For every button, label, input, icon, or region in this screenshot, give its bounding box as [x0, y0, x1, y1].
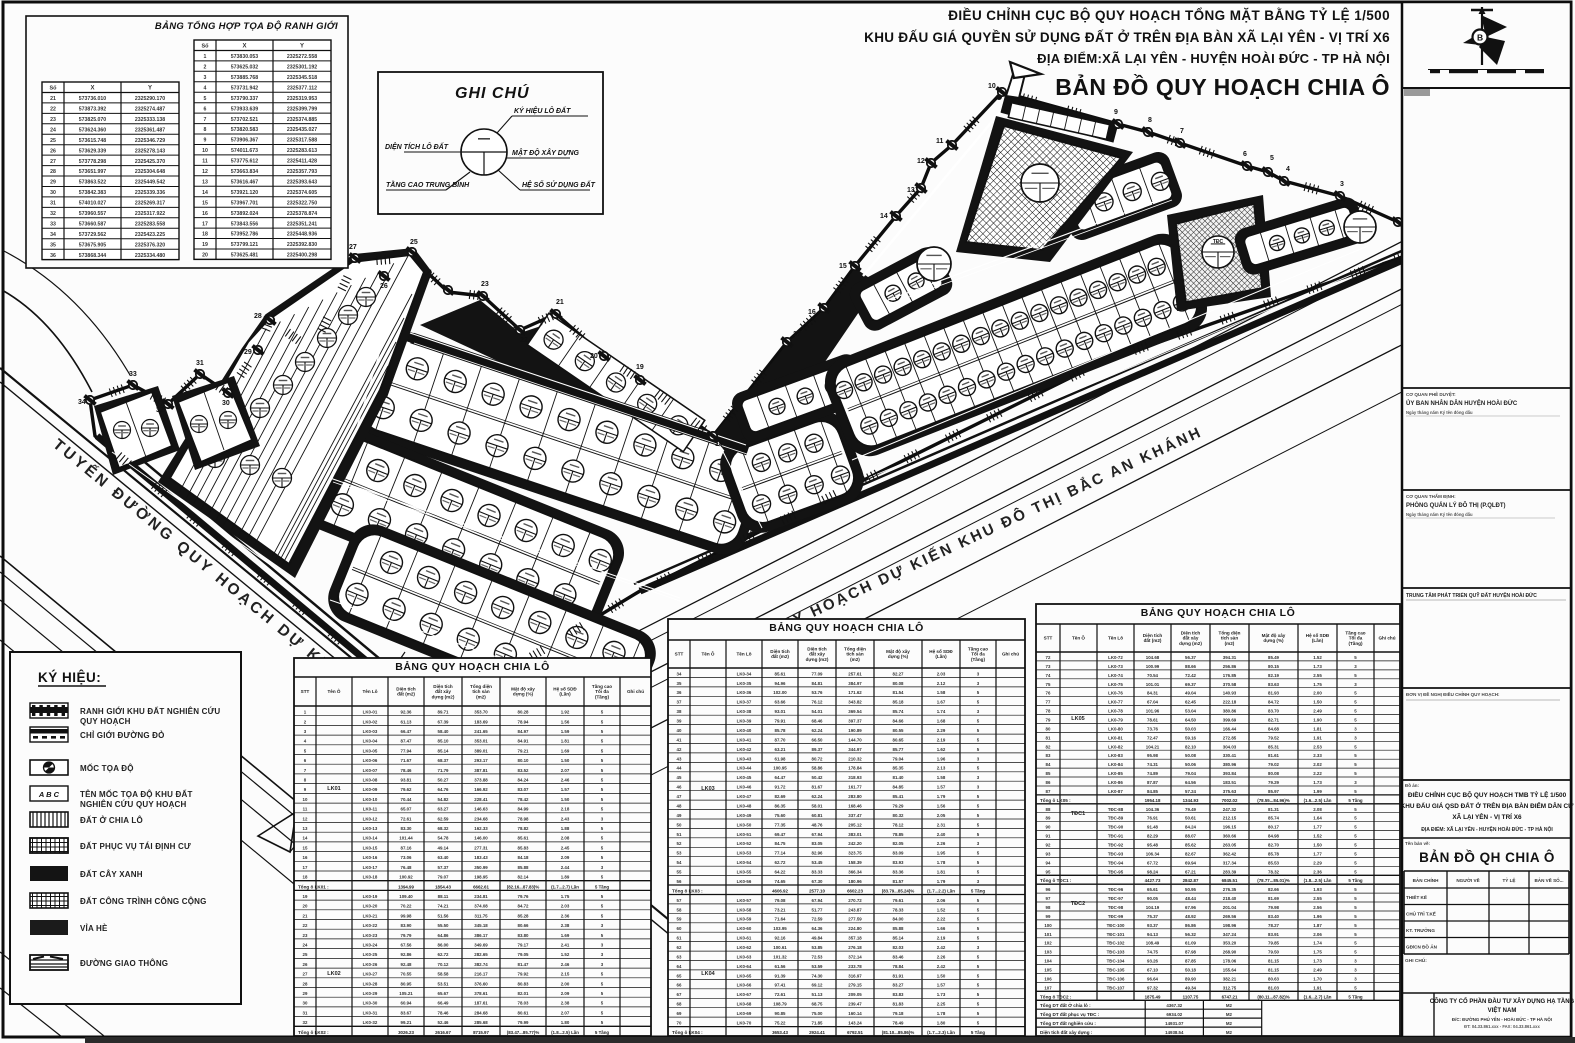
svg-text:311.75: 311.75: [474, 913, 488, 918]
svg-text:39: 39: [677, 719, 682, 724]
svg-text:50.61: 50.61: [1185, 816, 1197, 821]
svg-text:84: 84: [1046, 762, 1051, 767]
svg-text:78.27: 78.27: [1268, 923, 1280, 928]
svg-text:9: 9: [204, 138, 207, 144]
svg-text:LK0-66: LK0-66: [737, 983, 752, 988]
svg-text:(m2): (m2): [476, 694, 486, 699]
svg-text:94: 94: [1046, 860, 1051, 865]
svg-text:Tổng DT đất Ở chia lô :: Tổng DT đất Ở chia lô :: [1040, 1002, 1091, 1008]
svg-text:2.19: 2.19: [937, 737, 946, 742]
svg-text:Tổng diện: Tổng diện: [470, 683, 492, 689]
svg-text:14938.54: 14938.54: [1165, 1030, 1184, 1035]
svg-text:2.09: 2.09: [561, 855, 570, 860]
svg-text:1.81: 1.81: [937, 870, 946, 875]
svg-text:83.93: 83.93: [893, 860, 905, 865]
svg-text:28: 28: [254, 313, 262, 320]
svg-text:73.21: 73.21: [775, 907, 787, 912]
svg-text:389.01: 389.01: [474, 748, 488, 753]
svg-text:2.56: 2.56: [1313, 905, 1322, 910]
svg-text:103.95: 103.95: [773, 926, 787, 931]
svg-text:ỦY BAN NHÂN DÂN HUYỆN HOÀI ĐỨC: ỦY BAN NHÂN DÂN HUYỆN HOÀI ĐỨC: [1406, 399, 1518, 407]
svg-text:78.94: 78.94: [518, 719, 530, 724]
svg-text:5 Tầng: 5 Tầng: [971, 888, 985, 893]
svg-text:78: 78: [1046, 709, 1051, 714]
svg-text:TĐC-107: TĐC-107: [1107, 985, 1125, 990]
svg-text:318.93: 318.93: [848, 775, 862, 780]
svg-text:77.14: 77.14: [775, 851, 787, 856]
svg-text:155.64: 155.64: [1223, 968, 1237, 973]
svg-text:71.79: 71.79: [438, 768, 450, 773]
svg-text:83.36: 83.36: [893, 870, 905, 875]
svg-text:LK0-05: LK0-05: [363, 748, 378, 753]
svg-text:LK0-75: LK0-75: [1108, 682, 1123, 687]
svg-text:RANH GIỚI KHU ĐẤT NGHIÊN CỨU: RANH GIỚI KHU ĐẤT NGHIÊN CỨU: [80, 706, 220, 716]
svg-text:80.61: 80.61: [518, 1011, 530, 1016]
svg-text:2.08: 2.08: [1313, 807, 1322, 812]
svg-text:83.90: 83.90: [401, 923, 413, 928]
svg-text:ĐẤT PHỤC VỤ TÁI ĐỊNH CƯ: ĐẤT PHỤC VỤ TÁI ĐỊNH CƯ: [80, 841, 191, 851]
svg-text:54: 54: [677, 860, 682, 865]
svg-text:64.22: 64.22: [775, 870, 787, 875]
svg-text:35: 35: [677, 681, 682, 686]
svg-text:573625.481: 573625.481: [231, 253, 259, 259]
svg-text:28: 28: [303, 981, 308, 986]
svg-text:87.70: 87.70: [775, 737, 787, 742]
svg-text:2325301.192: 2325301.192: [287, 65, 317, 71]
svg-text:239.47: 239.47: [848, 1002, 862, 1007]
svg-text:BẢNG QUY HOẠCH CHIA LÔ: BẢNG QUY HOẠCH CHIA LÔ: [769, 621, 924, 634]
svg-text:MỐC TỌA ĐỘ: MỐC TỌA ĐỘ: [80, 763, 134, 773]
svg-text:382.74: 382.74: [474, 962, 488, 967]
svg-text:LK0-45: LK0-45: [737, 775, 752, 780]
svg-text:2325317.588: 2325317.588: [287, 138, 317, 144]
svg-text:2.42: 2.42: [937, 964, 946, 969]
svg-text:36: 36: [50, 253, 56, 259]
svg-text:2325448.936: 2325448.936: [287, 232, 317, 238]
svg-text:84.68: 84.68: [1268, 726, 1280, 731]
svg-text:75: 75: [1046, 682, 1051, 687]
svg-text:61: 61: [677, 936, 682, 941]
svg-text:2325345.518: 2325345.518: [287, 75, 317, 81]
svg-text:46: 46: [677, 785, 682, 790]
svg-text:7: 7: [1180, 128, 1184, 135]
svg-text:(1.8...2.5) Lần: (1.8...2.5) Lần: [551, 1030, 579, 1035]
svg-text:1.91: 1.91: [1313, 735, 1322, 740]
svg-text:92.86: 92.86: [401, 952, 413, 957]
svg-text:53.45: 53.45: [812, 860, 824, 865]
svg-text:101.32: 101.32: [773, 954, 787, 959]
svg-text:88.66: 88.66: [1185, 664, 1197, 669]
svg-text:XÃ LẠI YÊN - VỊ TRÍ X6: XÃ LẠI YÊN - VỊ TRÍ X6: [1452, 812, 1522, 821]
svg-text:72: 72: [1046, 655, 1051, 660]
svg-text:62.45: 62.45: [1185, 700, 1197, 705]
svg-text:74.75: 74.75: [1147, 950, 1159, 955]
svg-text:49: 49: [677, 813, 682, 818]
svg-text:54.01: 54.01: [812, 709, 824, 714]
svg-text:33: 33: [129, 371, 137, 378]
svg-text:81.57: 81.57: [893, 879, 905, 884]
svg-text:76.48: 76.48: [401, 865, 413, 870]
svg-text:TĐC-105: TĐC-105: [1107, 968, 1125, 973]
svg-text:dựng (m2): dựng (m2): [1179, 641, 1202, 646]
svg-text:2.07: 2.07: [561, 768, 570, 773]
svg-text:TÊN MỐC TỌA ĐỘ KHU ĐẤT: TÊN MỐC TỌA ĐỘ KHU ĐẤT: [80, 789, 193, 799]
svg-text:20: 20: [202, 253, 208, 259]
svg-text:27: 27: [303, 972, 308, 977]
svg-text:26: 26: [303, 962, 308, 967]
svg-text:378.61: 378.61: [474, 991, 488, 996]
svg-text:573873.392: 573873.392: [79, 107, 107, 113]
svg-text:2.43: 2.43: [561, 816, 570, 821]
svg-text:B: B: [1477, 33, 1483, 43]
svg-text:380.86: 380.86: [1223, 709, 1237, 714]
svg-text:CÔNG TY CỔ PHẦN ĐẦU TƯ XÂY DỰN: CÔNG TY CỔ PHẦN ĐẦU TƯ XÂY DỰNG HẠ TẦNG: [1430, 997, 1575, 1005]
svg-text:144.70: 144.70: [848, 737, 862, 742]
svg-text:ĐẤT CÂY XANH: ĐẤT CÂY XANH: [80, 869, 143, 879]
svg-text:51.13: 51.13: [812, 992, 824, 997]
svg-text:17: 17: [202, 221, 208, 227]
svg-text:X: X: [90, 86, 94, 92]
svg-text:1.81: 1.81: [561, 739, 570, 744]
svg-text:2325351.241: 2325351.241: [287, 221, 317, 227]
svg-text:108.79: 108.79: [773, 1002, 787, 1007]
svg-text:76.91: 76.91: [1147, 816, 1159, 821]
svg-text:1.52: 1.52: [1313, 834, 1322, 839]
svg-text:171.62: 171.62: [848, 690, 862, 695]
svg-text:2.29: 2.29: [1313, 860, 1322, 865]
svg-text:1.79: 1.79: [937, 794, 946, 799]
svg-text:2.26: 2.26: [937, 841, 946, 846]
svg-text:2.46: 2.46: [561, 962, 570, 967]
svg-text:2325304.648: 2325304.648: [135, 169, 165, 175]
svg-text:78.12: 78.12: [893, 822, 905, 827]
svg-text:LK0-47: LK0-47: [737, 794, 752, 799]
svg-text:102.00: 102.00: [773, 690, 787, 695]
svg-text:72.42: 72.42: [1185, 673, 1197, 678]
svg-text:52.46: 52.46: [438, 1020, 450, 1025]
svg-text:61.98: 61.98: [775, 756, 787, 761]
svg-text:LK0-77: LK0-77: [1108, 700, 1123, 705]
svg-text:50.06: 50.06: [1185, 762, 1197, 767]
svg-text:69.47: 69.47: [775, 832, 787, 837]
svg-text:LK0-12: LK0-12: [363, 816, 378, 821]
svg-text:107: 107: [1044, 985, 1052, 990]
svg-text:LK0-18: LK0-18: [363, 875, 378, 880]
svg-text:74.31: 74.31: [1147, 762, 1159, 767]
svg-text:394.31: 394.31: [1223, 655, 1237, 660]
svg-text:74.21: 74.21: [438, 904, 450, 909]
svg-text:2.38: 2.38: [561, 923, 570, 928]
svg-text:LK0-20: LK0-20: [363, 904, 378, 909]
svg-text:1.95: 1.95: [937, 851, 946, 856]
svg-text:2325272.558: 2325272.558: [287, 54, 317, 60]
svg-text:1.58: 1.58: [937, 775, 946, 780]
svg-text:33: 33: [50, 222, 56, 228]
svg-text:65.61: 65.61: [1147, 887, 1159, 892]
svg-text:14931.07: 14931.07: [1165, 1021, 1184, 1026]
svg-text:LK0-39: LK0-39: [737, 719, 752, 724]
svg-text:LK0-06: LK0-06: [363, 758, 378, 763]
svg-text:58.40: 58.40: [438, 729, 450, 734]
svg-text:1.80: 1.80: [561, 1020, 570, 1025]
svg-text:21: 21: [556, 299, 564, 306]
svg-text:360.66: 360.66: [1223, 834, 1237, 839]
svg-text:1.50: 1.50: [1313, 843, 1322, 848]
svg-text:KHU ĐẤU GIÁ QUYỀN SỬ DỤNG ĐẤT: KHU ĐẤU GIÁ QUYỀN SỬ DỤNG ĐẤT Ở TRÊN ĐỊA…: [864, 30, 1390, 45]
svg-text:2.44: 2.44: [561, 865, 570, 870]
svg-text:Tổng diện: Tổng diện: [1219, 629, 1241, 635]
svg-text:16: 16: [303, 855, 308, 860]
svg-text:77: 77: [1046, 700, 1051, 705]
svg-text:2.49: 2.49: [1313, 968, 1322, 973]
svg-text:82.70: 82.70: [1268, 843, 1280, 848]
svg-text:68.75: 68.75: [812, 1002, 824, 1007]
svg-text:2.55: 2.55: [1313, 896, 1322, 901]
svg-text:96: 96: [1046, 887, 1051, 892]
svg-text:LK0-70: LK0-70: [737, 1021, 752, 1026]
svg-text:101.96: 101.96: [1146, 709, 1160, 714]
svg-text:23: 23: [50, 117, 56, 123]
svg-text:TĐC-98: TĐC-98: [1108, 905, 1124, 910]
svg-text:2325346.729: 2325346.729: [135, 138, 165, 144]
svg-text:53: 53: [677, 851, 682, 856]
svg-text:83.05: 83.05: [812, 841, 824, 846]
svg-text:31: 31: [50, 201, 56, 207]
svg-text:83.80: 83.80: [518, 933, 530, 938]
svg-text:387.81: 387.81: [474, 768, 488, 773]
svg-text:5 Tầng: 5 Tầng: [595, 884, 609, 889]
svg-text:87.87: 87.87: [1147, 780, 1159, 785]
svg-text:BẢNG QUY HOẠCH CHIA LÔ: BẢNG QUY HOẠCH CHIA LÔ: [1141, 606, 1296, 619]
svg-text:573892.024: 573892.024: [231, 211, 259, 217]
svg-text:34: 34: [50, 232, 56, 238]
svg-text:85.77: 85.77: [893, 747, 905, 752]
svg-text:88: 88: [1046, 807, 1051, 812]
svg-text:(Lần): (Lần): [1312, 638, 1324, 643]
svg-text:29: 29: [50, 180, 56, 186]
svg-text:79.07: 79.07: [438, 875, 450, 880]
svg-text:LK0-62: LK0-62: [737, 945, 752, 950]
svg-text:317.34: 317.34: [1223, 860, 1237, 865]
svg-text:84.75: 84.75: [775, 841, 787, 846]
svg-text:64.56: 64.56: [1185, 780, 1197, 785]
svg-text:85.14: 85.14: [438, 748, 450, 753]
svg-text:62.59: 62.59: [438, 816, 450, 821]
svg-text:212.15: 212.15: [1223, 816, 1237, 821]
svg-text:573842.383: 573842.383: [79, 190, 107, 196]
svg-text:BẢN VẼ SỐ...: BẢN VẼ SỐ...: [1534, 877, 1563, 883]
svg-text:256.86: 256.86: [1223, 664, 1237, 669]
svg-text:397.37: 397.37: [848, 719, 862, 724]
svg-text:dựng (%): dựng (%): [513, 692, 534, 697]
svg-text:TĐC-100: TĐC-100: [1107, 923, 1125, 928]
svg-text:82.96: 82.96: [812, 851, 824, 856]
svg-text:2.13: 2.13: [937, 766, 946, 771]
svg-text:84.81: 84.81: [812, 681, 824, 686]
svg-text:2325357.793: 2325357.793: [287, 169, 317, 175]
svg-text:312.75: 312.75: [1223, 985, 1237, 990]
svg-text:75.37: 75.37: [1147, 914, 1159, 919]
svg-text:45: 45: [677, 775, 682, 780]
svg-text:LK0-48: LK0-48: [737, 804, 752, 809]
svg-text:Tổng ô LK05 :: Tổng ô LK05 :: [1040, 797, 1071, 803]
svg-text:201.04: 201.04: [1223, 905, 1237, 910]
svg-text:1.56: 1.56: [937, 804, 946, 809]
svg-text:79.04: 79.04: [893, 756, 905, 761]
svg-text:1.66: 1.66: [937, 926, 946, 931]
svg-text:573625.032: 573625.032: [231, 65, 259, 71]
svg-text:47: 47: [677, 794, 682, 799]
svg-text:LK0-11: LK0-11: [363, 807, 378, 812]
svg-text:60: 60: [677, 926, 682, 931]
svg-text:228.41: 228.41: [474, 797, 488, 802]
svg-text:TĐC-97: TĐC-97: [1108, 896, 1124, 901]
svg-text:104.19: 104.19: [1146, 905, 1160, 910]
svg-text:85.49: 85.49: [1268, 655, 1280, 660]
svg-text:1.92: 1.92: [561, 710, 570, 715]
svg-text:LK0-60: LK0-60: [737, 926, 752, 931]
svg-text:53.76: 53.76: [812, 690, 824, 695]
svg-text:2.55: 2.55: [1313, 673, 1322, 678]
svg-text:2325334.480: 2325334.480: [135, 253, 165, 259]
svg-text:Số: Số: [201, 43, 209, 50]
svg-text:1107.75: 1107.75: [1183, 994, 1199, 999]
svg-text:78.46: 78.46: [401, 768, 413, 773]
svg-text:Ghi chú: Ghi chú: [1378, 636, 1395, 641]
svg-text:79.02: 79.02: [1268, 762, 1280, 767]
svg-text:94.96: 94.96: [775, 681, 787, 686]
svg-text:573967.701: 573967.701: [231, 200, 259, 206]
svg-text:34: 34: [677, 671, 682, 676]
svg-text:386.17: 386.17: [474, 933, 488, 938]
svg-text:10: 10: [303, 797, 308, 802]
svg-text:6747.21: 6747.21: [1222, 994, 1238, 999]
svg-text:Tên Lô: Tên Lô: [1108, 636, 1123, 641]
svg-text:2325322.750: 2325322.750: [287, 200, 317, 206]
svg-text:35: 35: [50, 242, 56, 248]
svg-text:LK0-79: LK0-79: [1108, 718, 1123, 723]
svg-text:83.33: 83.33: [812, 870, 824, 875]
svg-text:81.03: 81.03: [1268, 985, 1280, 990]
svg-text:82.03: 82.03: [893, 945, 905, 950]
svg-text:380.96: 380.96: [1223, 762, 1237, 767]
svg-text:67.56: 67.56: [401, 943, 413, 948]
svg-text:VIỆT NAM: VIỆT NAM: [1488, 1006, 1517, 1014]
svg-text:573778.298: 573778.298: [79, 159, 107, 165]
svg-text:76: 76: [1046, 691, 1051, 696]
svg-text:67.96: 67.96: [1185, 905, 1197, 910]
svg-text:64: 64: [677, 964, 682, 969]
svg-text:(82.16...87.83)%: (82.16...87.83)%: [507, 884, 540, 889]
svg-text:2325333.138: 2325333.138: [135, 117, 165, 123]
svg-text:3: 3: [204, 75, 207, 81]
svg-text:Ngày tháng năm: Ngày tháng năm Ký tên đóng dấu: [1406, 410, 1473, 415]
svg-text:382.21: 382.21: [1223, 977, 1237, 982]
svg-text:78.46: 78.46: [438, 1011, 450, 1016]
svg-text:49.04: 49.04: [1185, 691, 1197, 696]
svg-text:79.29: 79.29: [893, 804, 905, 809]
svg-text:574010.027: 574010.027: [79, 201, 107, 207]
svg-text:23: 23: [303, 933, 308, 938]
svg-text:LK0-41: LK0-41: [737, 737, 752, 742]
svg-text:79.99: 79.99: [518, 1020, 530, 1025]
svg-text:GĐ/CN ĐỒ ÁN: GĐ/CN ĐỒ ÁN: [1406, 944, 1438, 950]
svg-text:2325274.487: 2325274.487: [135, 107, 165, 113]
svg-text:205.12: 205.12: [848, 822, 862, 827]
svg-text:LK0-68: LK0-68: [737, 1002, 752, 1007]
svg-text:1.50: 1.50: [1313, 700, 1322, 705]
svg-text:2577.10: 2577.10: [809, 888, 825, 893]
svg-text:99: 99: [1046, 914, 1051, 919]
svg-text:85: 85: [1046, 771, 1051, 776]
svg-text:293.17: 293.17: [474, 758, 488, 763]
svg-text:330.41: 330.41: [1223, 753, 1237, 758]
svg-text:LK0-04: LK0-04: [363, 739, 378, 744]
svg-text:146.00: 146.00: [474, 836, 488, 841]
svg-text:2.40: 2.40: [937, 832, 946, 837]
svg-text:Tổng ô LK03 :: Tổng ô LK03 :: [672, 887, 703, 893]
svg-text:82.66: 82.66: [1268, 887, 1280, 892]
svg-text:1.50: 1.50: [561, 797, 570, 802]
svg-text:2.49: 2.49: [1313, 709, 1322, 714]
svg-text:216.17: 216.17: [474, 972, 488, 977]
svg-text:72.53: 72.53: [812, 954, 824, 959]
svg-text:QUY HOẠCH: QUY HOẠCH: [80, 717, 131, 726]
svg-text:70.54: 70.54: [1147, 673, 1159, 678]
svg-text:27: 27: [50, 159, 56, 165]
svg-text:5: 5: [1270, 155, 1274, 162]
svg-text:90: 90: [1046, 825, 1051, 830]
svg-text:98: 98: [1046, 905, 1051, 910]
svg-text:66.47: 66.47: [401, 729, 413, 734]
svg-text:304.03: 304.03: [1223, 744, 1237, 749]
svg-text:2.31: 2.31: [937, 822, 946, 827]
svg-text:242.20: 242.20: [848, 841, 862, 846]
svg-text:2325269.317: 2325269.317: [135, 201, 165, 207]
svg-text:83.46: 83.46: [893, 954, 905, 959]
svg-text:TĐC-95: TĐC-95: [1108, 869, 1124, 874]
svg-text:LK0-23: LK0-23: [363, 933, 378, 938]
svg-text:68.32: 68.32: [438, 826, 450, 831]
svg-text:97.41: 97.41: [775, 983, 787, 988]
svg-text:337.47: 337.47: [848, 813, 862, 818]
svg-text:85.78: 85.78: [775, 728, 787, 733]
svg-text:70.55: 70.55: [401, 972, 413, 977]
svg-text:63: 63: [677, 954, 682, 959]
svg-text:94.13: 94.13: [1147, 932, 1159, 937]
svg-text:85.18: 85.18: [893, 700, 905, 705]
svg-text:63.66: 63.66: [775, 700, 787, 705]
svg-text:LK0-61: LK0-61: [737, 936, 752, 941]
svg-text:84.00: 84.00: [893, 917, 905, 922]
svg-text:85.28: 85.28: [518, 913, 530, 918]
svg-text:Số: Số: [49, 85, 57, 92]
svg-text:4: 4: [1286, 166, 1290, 173]
svg-text:Tối đa: Tối đa: [595, 688, 609, 694]
svg-text:15: 15: [839, 263, 847, 270]
svg-text:67: 67: [677, 992, 682, 997]
svg-text:5 Tầng: 5 Tầng: [971, 1030, 985, 1035]
svg-text:85.61: 85.61: [775, 671, 787, 676]
svg-text:2325319.953: 2325319.953: [287, 96, 317, 102]
svg-text:70.44: 70.44: [401, 797, 413, 802]
svg-text:187.61: 187.61: [474, 1001, 488, 1006]
svg-text:2325449.542: 2325449.542: [135, 180, 165, 186]
svg-text:268.90: 268.90: [1223, 950, 1237, 955]
svg-text:80.95: 80.95: [401, 981, 413, 986]
svg-text:69: 69: [677, 1011, 682, 1016]
svg-text:17: 17: [793, 331, 801, 338]
